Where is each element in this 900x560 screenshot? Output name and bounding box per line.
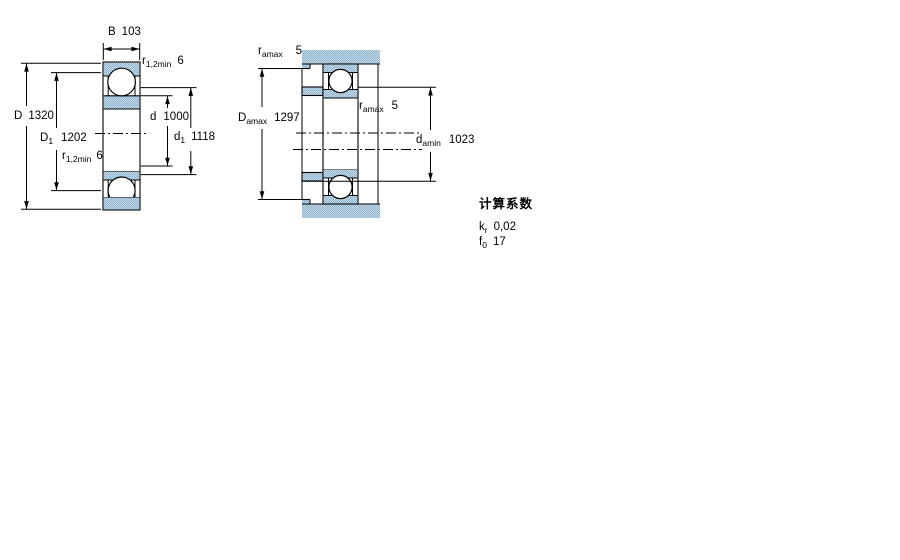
dim-label-D: D1320 <box>14 110 54 123</box>
dim-label-ramax-top: ramax5 <box>258 45 302 58</box>
left-dim-B <box>103 43 139 60</box>
factor-f0: f017 <box>479 236 533 248</box>
ball-top-left-figure <box>108 68 136 96</box>
dim-label-d: d1000 <box>150 111 189 124</box>
ball-bottom-right-figure <box>329 175 352 198</box>
bearing-dimension-drawing: B103 r1,2min6 D1320 D11202 r1,2min6 d100… <box>0 0 900 560</box>
dim-label-Damax: Damax1297 <box>238 112 300 125</box>
right-bearing-cross-section <box>293 64 422 204</box>
dim-label-r12min-bottom: r1,2min6 <box>62 150 103 163</box>
dim-label-B: B103 <box>108 26 141 39</box>
left-dim-d <box>141 96 173 166</box>
left-bearing-cross-section <box>95 62 149 210</box>
dim-label-d1: d11118 <box>174 131 215 144</box>
right-dim-Damax <box>258 69 302 200</box>
dim-label-r12min-top: r1,2min6 <box>142 55 184 68</box>
factor-kr: kr0,02 <box>479 221 533 233</box>
calculation-factors-block: 计算系数 kr0,02 f017 <box>479 193 533 251</box>
dim-label-D1: D11202 <box>40 132 87 145</box>
technical-drawing-svg <box>0 0 900 560</box>
dim-label-damin: damin1023 <box>416 134 474 147</box>
dim-label-ramax-mid: ramax5 <box>359 100 398 113</box>
ball-top-right-figure <box>329 69 352 92</box>
calculation-factors-title: 计算系数 <box>479 193 533 212</box>
